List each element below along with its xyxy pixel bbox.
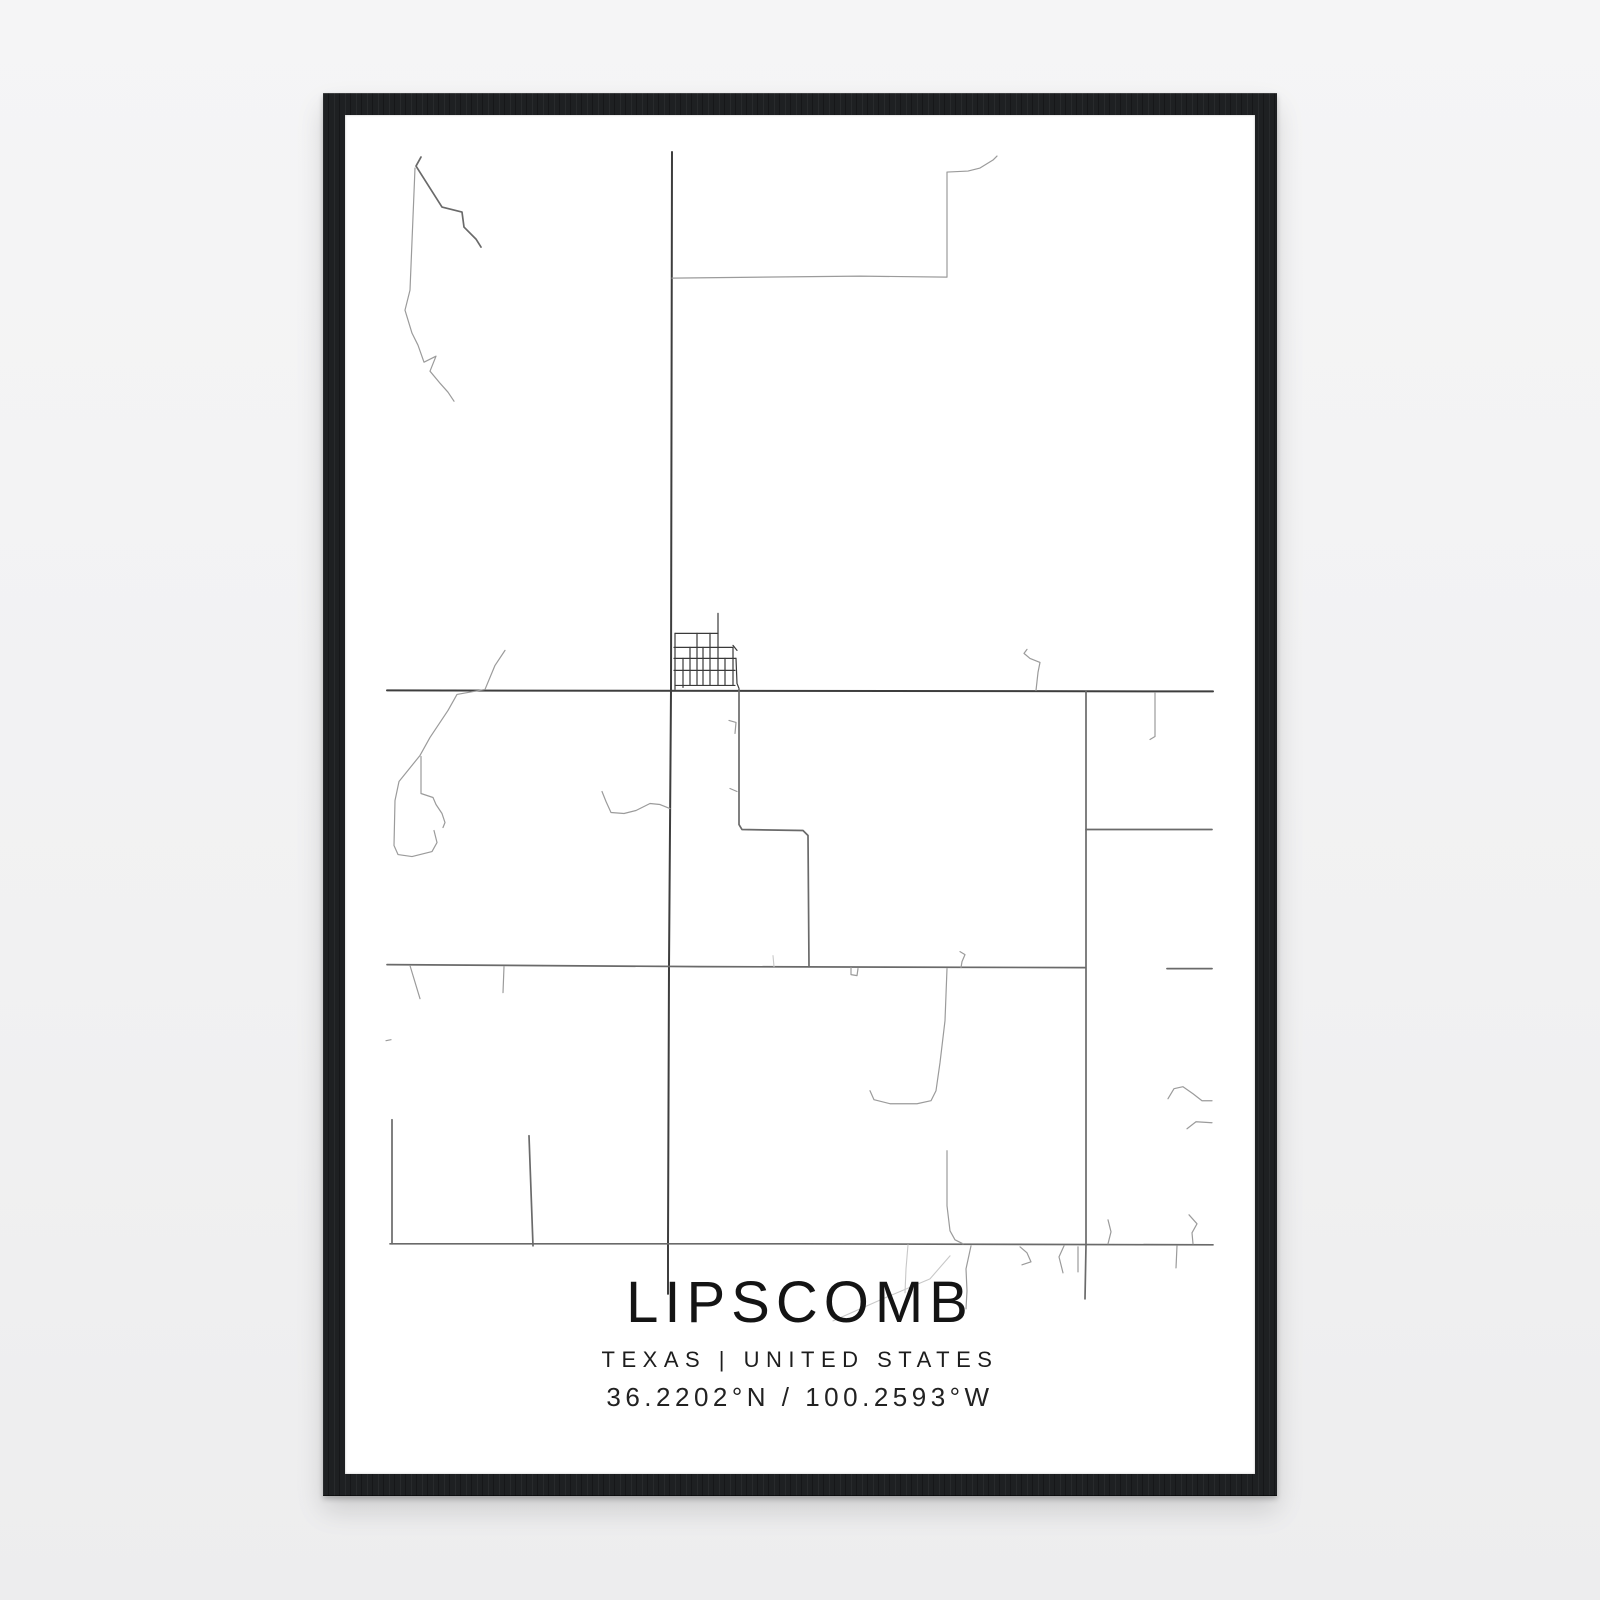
road-tick-below-h4-2 — [1059, 1246, 1064, 1273]
road-u-tick-h2 — [851, 968, 858, 976]
road-tick-connector-2 — [730, 788, 737, 791]
road-bottom-slant-road — [529, 1136, 533, 1246]
road-highway-upper — [387, 690, 1213, 691]
road-town-south-connector — [739, 689, 809, 966]
road-east-creek-from-h2 — [870, 969, 947, 1104]
road-main-vertical — [668, 152, 672, 1294]
road-east-creek-to-h4 — [947, 1151, 963, 1244]
road-tick-below-h2-1 — [410, 966, 420, 999]
road-tick-above-h4-2 — [1189, 1215, 1197, 1244]
road-mid-creek-to-v1 — [602, 791, 670, 813]
page-background: { "poster": { "title": "LIPSCOMB", "subt… — [0, 0, 1600, 1600]
road-dash-left — [386, 1040, 391, 1041]
city-title: LIPSCOMB — [345, 1273, 1255, 1333]
road-tick-below-h2-2 — [503, 967, 504, 993]
road-highway-middle — [387, 965, 1085, 968]
road-north-loop-road — [672, 156, 997, 278]
road-nw-creek — [405, 168, 454, 401]
road-west-creek-main — [394, 650, 505, 856]
road-tick-below-h4-4 — [1176, 1246, 1177, 1268]
region-subtitle: TEXAS | UNITED STATES — [345, 1348, 1255, 1372]
road-tick-connector-1 — [729, 720, 736, 733]
road-squiggle-above-h1 — [1024, 649, 1040, 690]
road-right-wave-1 — [1168, 1087, 1212, 1101]
road-highway-lower — [390, 1244, 1213, 1245]
map-poster: LIPSCOMB TEXAS | UNITED STATES 36.2202°N… — [345, 115, 1255, 1474]
road-right-vertical — [1085, 691, 1086, 1298]
road-grid-east-edge — [736, 658, 739, 688]
road-west-creek-branch — [421, 756, 445, 827]
road-faint-tick-h2 — [773, 956, 774, 967]
road-tick-below-h4-1 — [1020, 1247, 1031, 1265]
poster-caption: LIPSCOMB TEXAS | UNITED STATES 36.2202°N… — [345, 1273, 1255, 1411]
road-right-wave-2 — [1187, 1122, 1212, 1129]
road-hook-crossing-h2 — [960, 952, 965, 968]
road-nw-diagonal-dark — [416, 157, 481, 247]
coordinates-label: 36.2202°N / 100.2593°W — [345, 1383, 1255, 1411]
road-tick-above-h4-1 — [1108, 1220, 1111, 1244]
poster-frame: LIPSCOMB TEXAS | UNITED STATES 36.2202°N… — [323, 93, 1277, 1496]
road-tick-below-h1-right — [1150, 692, 1155, 739]
